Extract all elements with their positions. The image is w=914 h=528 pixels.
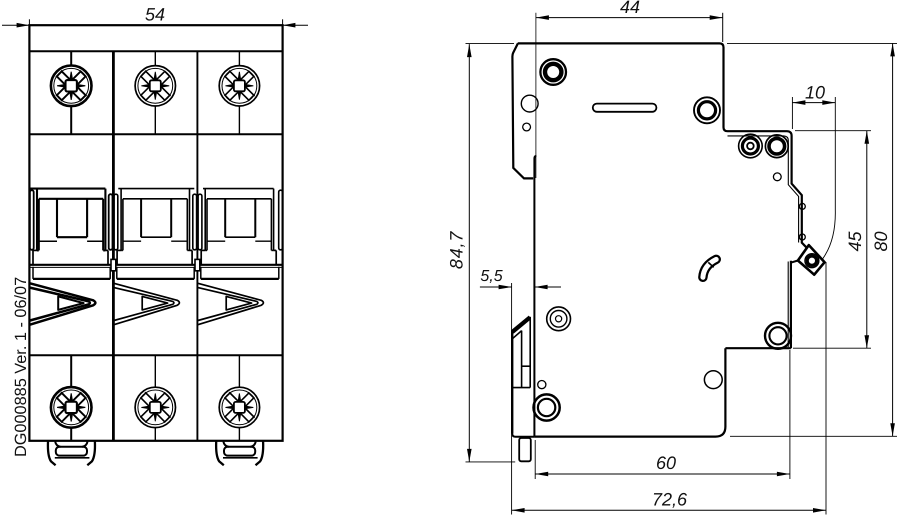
svg-text:80: 80 [871,231,891,251]
svg-text:5,5: 5,5 [480,268,502,285]
svg-text:60: 60 [656,453,676,473]
svg-text:44: 44 [620,0,640,17]
svg-text:72,6: 72,6 [652,489,688,509]
svg-text:84,7: 84,7 [447,231,467,269]
svg-text:DG000885 Ver. 1 - 06/07: DG000885 Ver. 1 - 06/07 [12,277,30,457]
svg-text:54: 54 [145,5,165,25]
svg-text:45: 45 [845,231,865,252]
svg-text:10: 10 [805,83,825,103]
